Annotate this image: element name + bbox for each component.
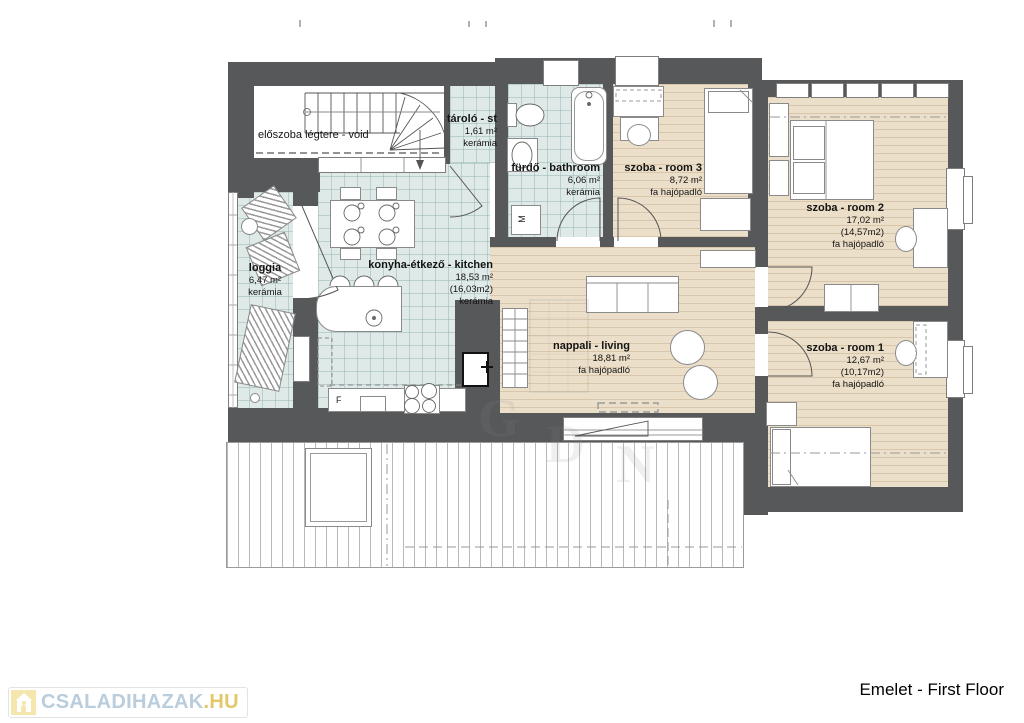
dining-chair-icon — [340, 187, 361, 200]
pillow-icon — [772, 429, 791, 485]
sofa-icon — [586, 276, 679, 313]
site-logo: CSALADIHAZAK .HU — [8, 687, 248, 718]
window-top-1 — [543, 60, 579, 86]
room2-closet-1 — [776, 83, 809, 98]
chair-icon — [627, 124, 651, 146]
bench-icon — [824, 284, 879, 312]
armchair-icon — [670, 330, 705, 365]
wall-hall-top-c — [658, 237, 762, 247]
dishwasher-icon — [360, 396, 386, 412]
room2-closet-2 — [811, 83, 844, 98]
stove-icon — [404, 385, 440, 414]
bathtub-icon — [571, 87, 607, 165]
loggia-pot-icon — [250, 393, 260, 403]
loggia-table-icon — [241, 218, 258, 235]
skylight-window — [305, 448, 372, 527]
nightstand-icon — [769, 160, 789, 196]
fridge-label: F — [336, 395, 342, 405]
label-bathroom: fürdő - bathroom 6,06 m² kerámia — [498, 162, 600, 199]
nightstand-icon — [766, 402, 797, 426]
toilet-tank-icon — [507, 103, 517, 127]
reference-ticks — [300, 20, 731, 27]
window-top-2 — [615, 56, 659, 86]
roof-terrace — [226, 442, 744, 568]
wall-hall-top-a — [490, 237, 556, 247]
wall-hall-vertical-1 — [755, 237, 768, 267]
house-icon — [11, 690, 36, 715]
kitchen-counter-icon — [328, 388, 466, 412]
plan-title: Emelet - First Floor — [859, 680, 1004, 700]
chair-icon — [895, 226, 917, 252]
chair-icon — [895, 340, 917, 366]
label-storage: tároló - st 1,61 m² kerámia — [420, 113, 497, 150]
window-loggia-divider — [293, 336, 310, 382]
roof-access-sill — [563, 417, 703, 441]
wall-hall-top-b — [600, 237, 614, 247]
wall-loggia-divider-top — [293, 192, 318, 206]
armchair-icon — [683, 365, 718, 400]
washer-label: M — [517, 215, 527, 223]
pillow-icon — [708, 91, 749, 113]
label-void: előszoba légtere - void — [258, 129, 369, 142]
window-right-room1-sill — [963, 346, 973, 394]
room2-closet-4 — [881, 83, 914, 98]
sideboard-icon — [700, 250, 756, 268]
label-living: nappali - living 18,81 m² fa hajópadló — [518, 340, 630, 377]
label-room3: szoba - room 3 8,72 m² fa hajópadló — [598, 162, 702, 199]
dining-chair-icon — [376, 187, 397, 200]
wall-right — [948, 80, 963, 512]
desk-icon — [913, 321, 948, 378]
label-room1: szoba - room 1 12,67 m² (10,17m2) fa haj… — [778, 342, 884, 390]
wall-top-left — [228, 62, 502, 86]
nightstand-icon — [769, 103, 789, 157]
bed-bench-icon — [700, 198, 751, 231]
floor-plan-page: F M G D N — [0, 0, 1024, 723]
pillow-icon — [793, 126, 825, 160]
wall-hall-vertical-2 — [755, 307, 768, 334]
logo-text-suffix: .HU — [203, 691, 238, 714]
dining-chair-icon — [340, 248, 361, 260]
label-room2: szoba - room 2 17,02 m² (14,57m2) fa haj… — [778, 202, 884, 250]
logo-text-primary: CSALADIHAZAK — [41, 691, 203, 714]
dining-table-icon — [330, 200, 415, 248]
desk-icon — [913, 208, 948, 268]
room2-closet-5 — [916, 83, 949, 98]
room-void-floor — [254, 85, 444, 158]
label-loggia: loggia 6,47 m² kerámia — [238, 262, 292, 299]
void-railing — [318, 157, 446, 173]
pillow-icon — [793, 162, 825, 194]
fireplace-icon — [462, 352, 489, 387]
window-right-room2-sill — [963, 176, 973, 224]
room2-closet-3 — [846, 83, 879, 98]
label-kitchen: konyha-étkező - kitchen 18,53 m² (16,03m… — [366, 259, 493, 307]
wardrobe-icon — [613, 86, 664, 117]
